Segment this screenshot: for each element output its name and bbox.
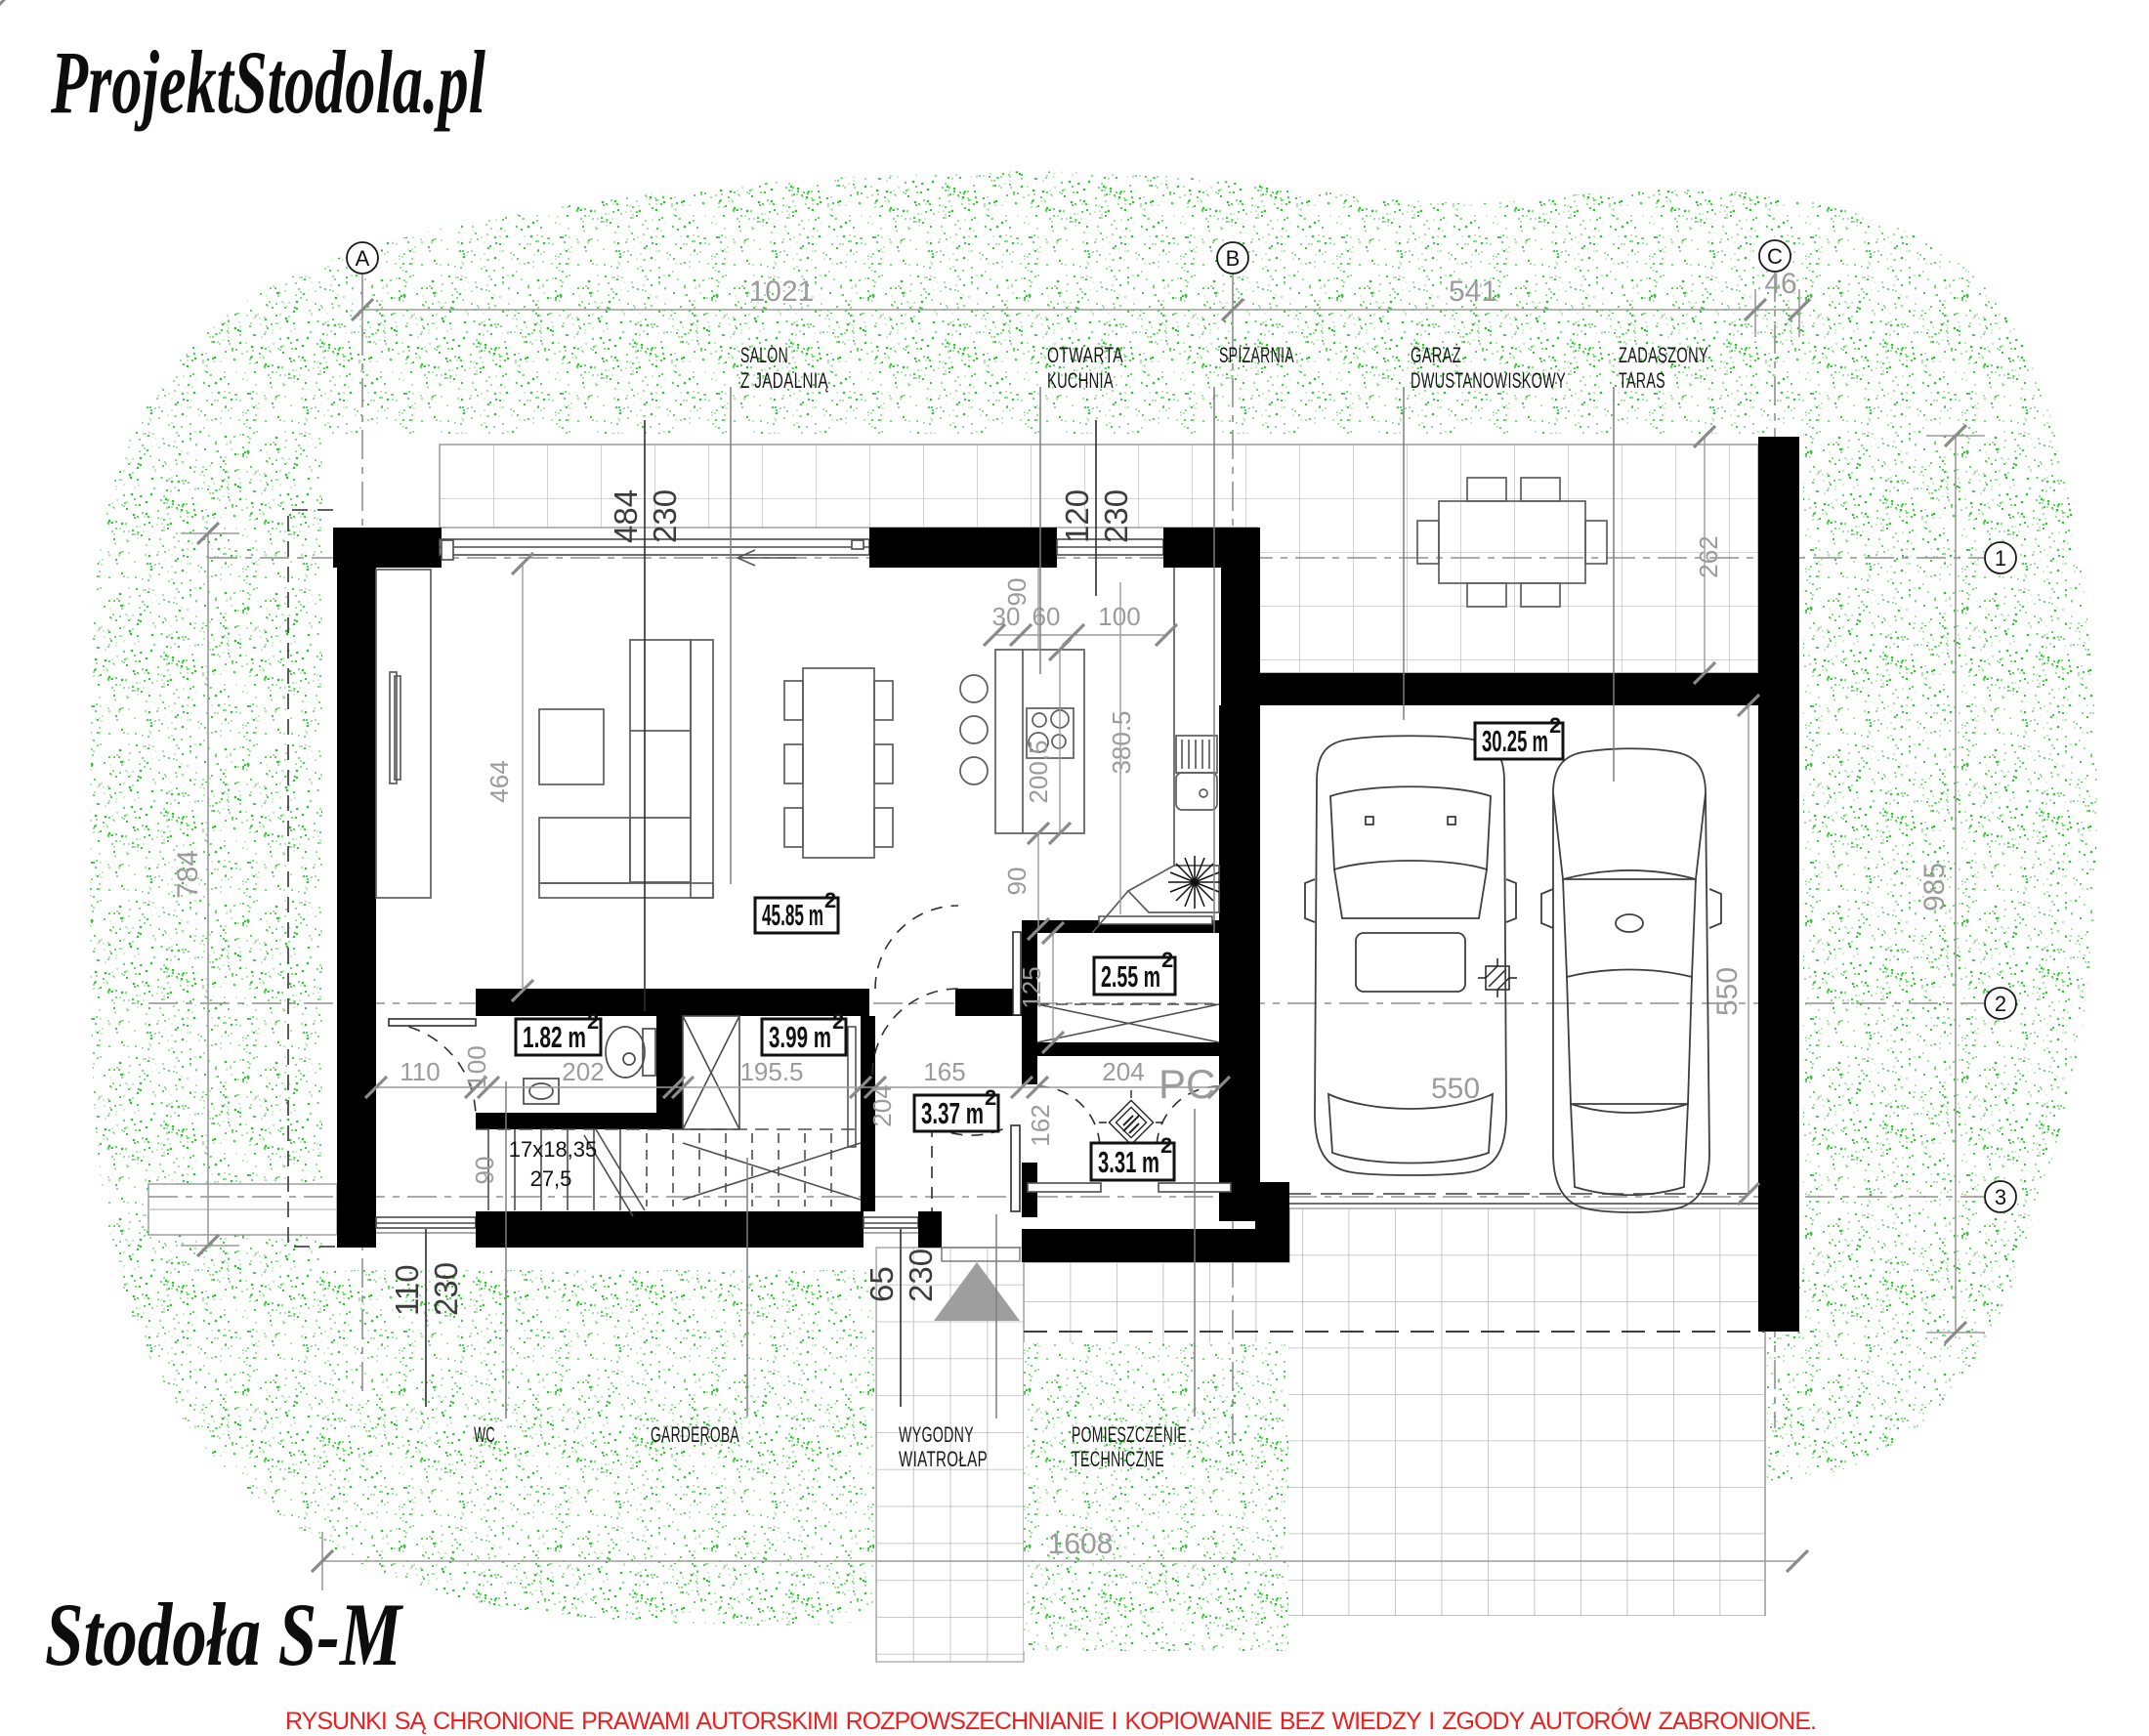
svg-text:GARAŻ: GARAŻ (1411, 343, 1461, 367)
svg-text:2.55 m: 2.55 m (1101, 959, 1160, 994)
svg-text:120: 120 (1059, 489, 1095, 543)
svg-text:110: 110 (389, 1264, 425, 1316)
svg-text:202: 202 (562, 1057, 604, 1086)
svg-text:1: 1 (1995, 546, 2006, 571)
svg-text:90: 90 (1002, 578, 1032, 607)
svg-text:1608: 1608 (1048, 1528, 1114, 1560)
svg-text:ZADASZONY: ZADASZONY (1619, 343, 1708, 367)
svg-text:90: 90 (1002, 868, 1032, 896)
svg-text:POMIESZCZENIE: POMIESZCZENIE (1072, 1422, 1187, 1447)
svg-text:65: 65 (864, 1266, 900, 1302)
svg-text:2: 2 (1160, 1133, 1172, 1158)
svg-text:46: 46 (1764, 268, 1796, 300)
svg-text:60: 60 (1032, 602, 1061, 631)
svg-text:100: 100 (462, 1045, 491, 1087)
svg-text:230: 230 (428, 1262, 464, 1316)
svg-text:C: C (1767, 244, 1783, 269)
svg-text:PC: PC (1159, 1061, 1215, 1107)
svg-text:OTWARTA: OTWARTA (1047, 343, 1123, 367)
svg-text:2: 2 (1161, 948, 1173, 972)
svg-text:165: 165 (923, 1057, 965, 1086)
svg-text:WIATROŁAP: WIATROŁAP (899, 1447, 988, 1471)
svg-text:784: 784 (172, 850, 204, 899)
svg-text:30.25 m: 30.25 m (1482, 724, 1548, 758)
svg-text:2: 2 (1549, 713, 1561, 738)
svg-text:SALON: SALON (740, 343, 788, 367)
svg-text:464: 464 (485, 760, 514, 802)
svg-text:230: 230 (1098, 489, 1134, 543)
svg-text:541: 541 (1449, 275, 1497, 308)
svg-text:110: 110 (400, 1057, 440, 1086)
svg-text:TECHNICZNE: TECHNICZNE (1072, 1447, 1164, 1471)
svg-text:A: A (356, 246, 370, 271)
svg-text:262: 262 (1694, 535, 1723, 577)
svg-text:90: 90 (470, 1157, 499, 1185)
svg-text:550: 550 (1431, 1073, 1480, 1105)
svg-text:2: 2 (1995, 992, 2006, 1016)
svg-text:B: B (1226, 246, 1241, 271)
svg-text:45.85 m: 45.85 m (762, 898, 823, 932)
svg-text:DWUSTANOWISKOWY: DWUSTANOWISKOWY (1411, 368, 1566, 393)
svg-text:100: 100 (1098, 602, 1140, 631)
svg-text:230: 230 (647, 489, 683, 543)
svg-text:204: 204 (1102, 1057, 1144, 1086)
svg-text:WC: WC (474, 1422, 495, 1447)
svg-text:125: 125 (1017, 966, 1046, 1008)
svg-text:204: 204 (867, 1084, 897, 1126)
svg-text:162: 162 (1026, 1104, 1055, 1146)
svg-text:SPIŻARNIA: SPIŻARNIA (1219, 343, 1294, 367)
svg-text:985: 985 (1918, 863, 1951, 911)
svg-text:ProjektStodola.pl: ProjektStodola.pl (50, 32, 485, 132)
svg-text:Stodoła S-M: Stodoła S-M (45, 1585, 403, 1684)
svg-text:TARAS: TARAS (1619, 368, 1665, 393)
svg-text:17x18,35: 17x18,35 (509, 1137, 598, 1162)
svg-text:550: 550 (1711, 967, 1744, 1016)
svg-text:3.31 m: 3.31 m (1098, 1145, 1159, 1179)
svg-text:3.99 m: 3.99 m (769, 1020, 831, 1054)
svg-text:380.5: 380.5 (1107, 710, 1136, 774)
svg-text:2: 2 (824, 888, 836, 912)
svg-text:230: 230 (903, 1249, 939, 1302)
svg-text:27,5: 27,5 (530, 1166, 572, 1191)
svg-text:1.82 m: 1.82 m (523, 1020, 586, 1054)
svg-text:2: 2 (587, 1009, 599, 1034)
svg-text:KUCHNIA: KUCHNIA (1047, 368, 1114, 393)
svg-text:200,5: 200,5 (1024, 740, 1053, 803)
svg-text:195.5: 195.5 (739, 1057, 803, 1086)
svg-text:3.37 m: 3.37 m (921, 1096, 984, 1130)
svg-text:GARDEROBA: GARDEROBA (651, 1422, 739, 1447)
svg-text:RYSUNKI SĄ CHRONIONE PRAWAM: RYSUNKI SĄ CHRONIONE PRAWAMI AUTORSKIMI … (285, 1707, 1817, 1735)
svg-text:484: 484 (608, 489, 644, 543)
svg-text:3: 3 (1995, 1185, 2006, 1209)
svg-text:2: 2 (985, 1085, 996, 1110)
svg-text:1021: 1021 (749, 275, 815, 308)
svg-text:Z JADALNIĄ: Z JADALNIĄ (740, 368, 828, 393)
svg-text:2: 2 (832, 1009, 844, 1034)
svg-text:WYGODNY: WYGODNY (899, 1422, 974, 1447)
